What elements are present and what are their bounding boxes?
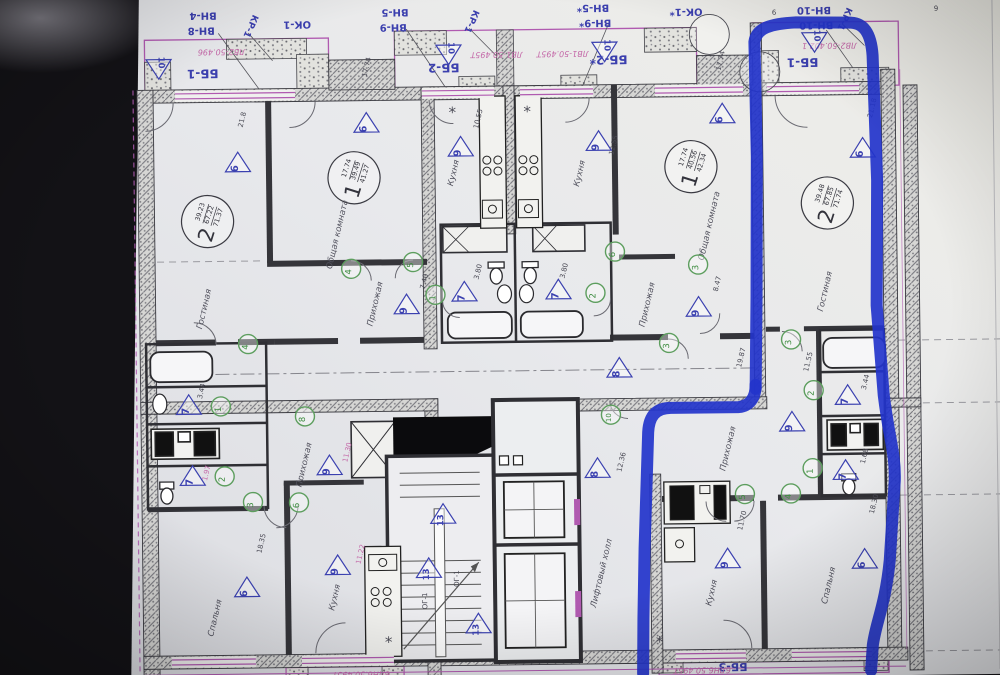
floor-plan-photo: ВН-4ВН-8КР-1ОК-1ВН-5ВН-9КР-1ВН-5*ВН-9*ОК… bbox=[0, 0, 1000, 675]
vignette bbox=[0, 0, 1000, 675]
